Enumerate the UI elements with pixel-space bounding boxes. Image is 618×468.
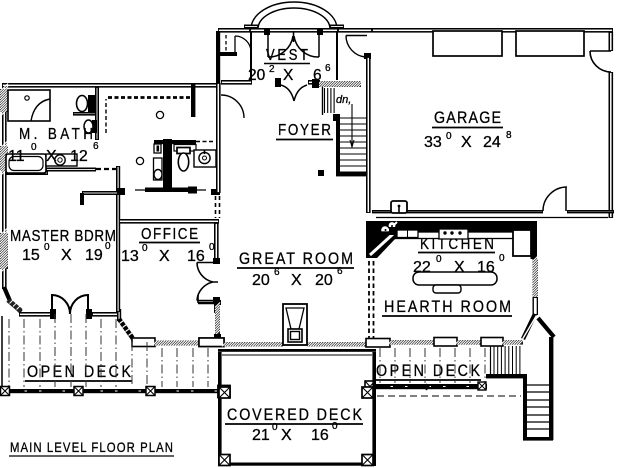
svg-text:6: 6	[337, 266, 343, 277]
svg-text:dn,: dn,	[336, 94, 351, 106]
svg-text:21: 21	[252, 427, 270, 444]
svg-text:33: 33	[424, 134, 442, 151]
svg-text:X: X	[159, 248, 170, 265]
svg-text:0: 0	[105, 241, 111, 252]
svg-text:24: 24	[483, 134, 501, 151]
svg-text:16: 16	[187, 248, 205, 265]
svg-text:0: 0	[209, 242, 215, 253]
svg-text:6: 6	[93, 141, 99, 152]
svg-text:0: 0	[142, 243, 148, 254]
svg-text:MAIN LEVEL FLOOR PLAN: MAIN LEVEL FLOOR PLAN	[10, 440, 173, 455]
svg-text:20: 20	[315, 272, 333, 289]
svg-text:X: X	[291, 272, 302, 289]
svg-text:X: X	[283, 67, 294, 84]
svg-text:6: 6	[325, 63, 331, 74]
svg-text:12: 12	[70, 148, 88, 165]
svg-text:16: 16	[311, 427, 329, 444]
svg-text:19: 19	[85, 247, 103, 264]
svg-text:HEARTH ROOM: HEARTH ROOM	[384, 298, 511, 316]
svg-text:0: 0	[272, 422, 278, 433]
svg-text:11: 11	[8, 148, 25, 165]
svg-text:8: 8	[506, 130, 512, 141]
svg-text:X: X	[46, 148, 57, 165]
svg-text:0: 0	[44, 242, 50, 253]
svg-text:0: 0	[436, 254, 442, 265]
svg-text:X: X	[461, 134, 472, 151]
svg-text:COVERED DECK: COVERED DECK	[227, 406, 362, 424]
svg-text:MASTER BDRM: MASTER BDRM	[10, 228, 116, 245]
svg-text:20: 20	[252, 272, 270, 289]
svg-text:15: 15	[22, 247, 40, 264]
svg-text:OFFICE: OFFICE	[141, 226, 198, 243]
svg-text:0: 0	[332, 421, 338, 432]
svg-text:0: 0	[31, 142, 37, 153]
svg-text:0: 0	[446, 131, 452, 142]
svg-text:X: X	[61, 247, 72, 264]
svg-text:GREAT ROOM: GREAT ROOM	[239, 250, 353, 268]
svg-text:FOYER: FOYER	[278, 122, 331, 139]
svg-text:6: 6	[313, 67, 322, 84]
svg-text:6: 6	[274, 267, 280, 278]
svg-text:X: X	[281, 427, 292, 444]
svg-text:20: 20	[248, 67, 266, 84]
svg-text:0: 0	[499, 253, 505, 264]
svg-text:13: 13	[121, 248, 139, 265]
svg-text:OPEN DECK: OPEN DECK	[376, 362, 480, 380]
svg-text:2: 2	[269, 64, 275, 75]
